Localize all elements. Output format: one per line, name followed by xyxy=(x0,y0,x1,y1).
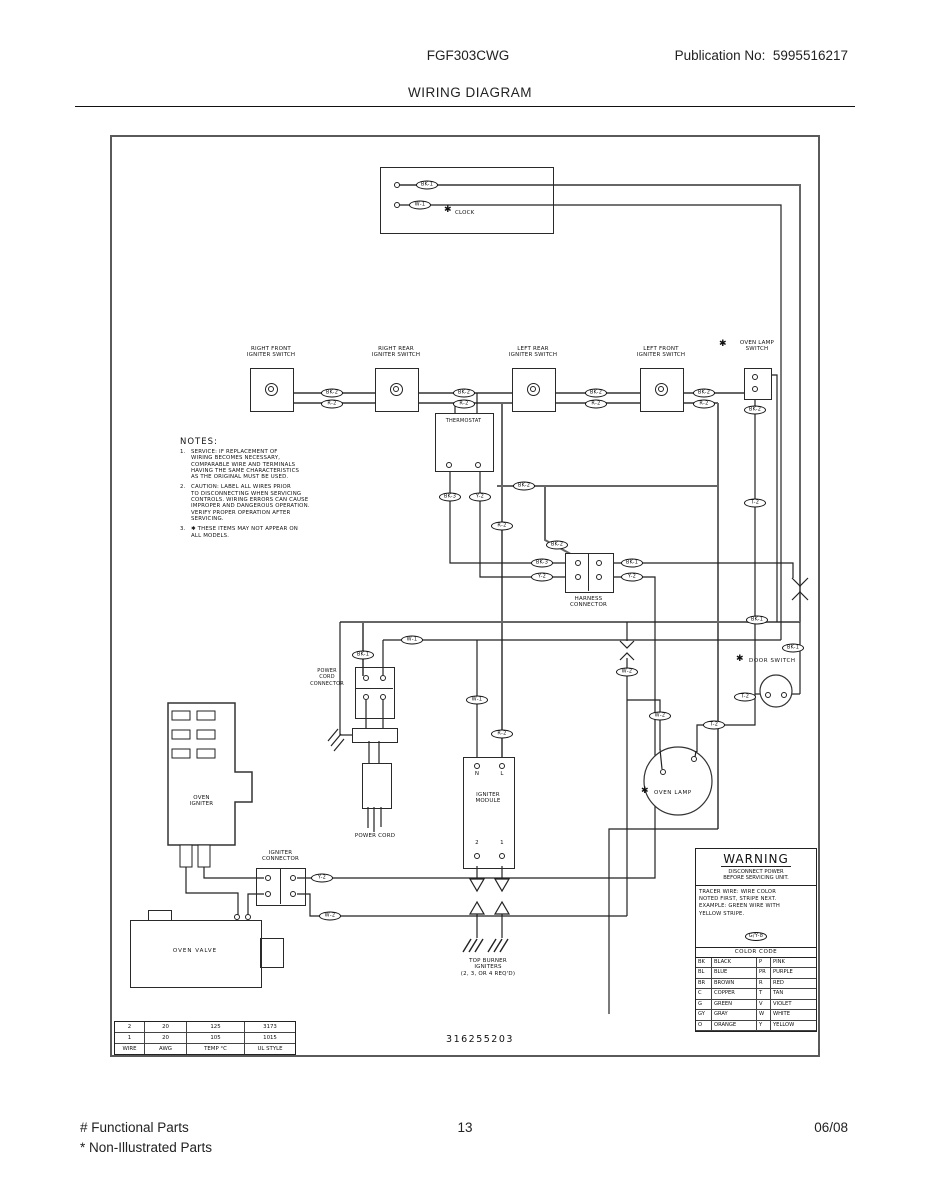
note-item-text: CAUTION: LABEL ALL WIRES PRIOR TO DISCON… xyxy=(191,484,310,522)
color-code-cell: BL xyxy=(696,968,712,979)
igniter-connector-divider xyxy=(280,868,281,904)
notes-heading: NOTES: xyxy=(180,437,358,447)
note-item: 1.SERVICE: IF REPLACEMENT OF WIRING BECO… xyxy=(180,449,358,480)
igniter-switch-label: RIGHT FRONT IGNITER SWITCH xyxy=(222,346,320,359)
power-cord-strain-relief xyxy=(352,728,398,743)
power-cord-connector-terminal xyxy=(380,675,386,681)
harness-connector-label: HARNESS CONNECTOR xyxy=(541,596,636,609)
wire-label: W-2 xyxy=(649,712,671,721)
wire-label: BK-2 xyxy=(321,389,343,398)
wire-label: T-2 xyxy=(734,693,756,702)
harness-terminal xyxy=(596,574,602,580)
may-not-appear-asterisk-icon: ✱ xyxy=(444,206,452,215)
clock-terminal xyxy=(394,182,400,188)
color-code-cell: BK xyxy=(696,958,712,969)
wire-spec-cell: 2 xyxy=(115,1022,145,1033)
door-switch-label: DOOR SWITCH xyxy=(749,658,813,664)
may-not-appear-asterisk-icon: ✱ xyxy=(736,655,744,664)
color-code-table: COLOR CODE BKBLACKPPINKBLBLUEPRPURPLEBRB… xyxy=(696,948,816,1032)
color-code-cell: T xyxy=(757,989,771,1000)
wire-label: W-1 xyxy=(466,696,488,705)
wire-label: BK-2 xyxy=(585,389,607,398)
oven-igniter-shape xyxy=(168,703,252,867)
igniter-module-terminal-2 xyxy=(474,853,480,859)
diagram-part-number: 316255203 xyxy=(410,1034,550,1045)
wire-label: W-1 xyxy=(401,636,423,645)
color-code-cell: W xyxy=(757,1010,771,1021)
color-code-cell: P xyxy=(757,958,771,969)
igniter-connector-terminal xyxy=(290,875,296,881)
color-code-cell: GREEN xyxy=(712,1000,757,1011)
clock-terminal xyxy=(394,202,400,208)
wire-label: BK-2 xyxy=(453,389,475,398)
color-code-cell: WHITE xyxy=(771,1010,816,1021)
note-item-text: ✱ THESE ITEMS MAY NOT APPEAR ON ALL MODE… xyxy=(191,526,298,539)
wire-label: BK-3 xyxy=(439,493,461,502)
manual-page: FGF303CWG Publication No: 5995516217 WIR… xyxy=(0,0,927,1200)
igniter-switch-terminal-dot xyxy=(268,386,274,392)
color-code-cell: RED xyxy=(771,979,816,990)
wire-label: R-2 xyxy=(491,522,513,531)
wire-spec-cell: WIRE xyxy=(115,1044,145,1054)
color-code-cell: G xyxy=(696,1000,712,1011)
color-code-cell: TAN xyxy=(771,989,816,1000)
igniter-switch-terminal-dot xyxy=(530,386,536,392)
igniter-module-terminal-n-label: N xyxy=(472,771,482,777)
may-not-appear-asterisk-icon: ✱ xyxy=(719,340,727,349)
wire-spec-cell: 105 xyxy=(187,1033,245,1044)
note-item: 2.CAUTION: LABEL ALL WIRES PRIOR TO DISC… xyxy=(180,484,358,522)
color-code-cell: ORANGE xyxy=(712,1021,757,1032)
wire-label: BK-3 xyxy=(531,559,553,568)
color-code-cell: BLACK xyxy=(712,958,757,969)
wire-label: T-2 xyxy=(744,499,766,508)
oven-lamp-switch-terminal xyxy=(752,386,758,392)
tracer-example-wire-label: G/Y-8 xyxy=(745,932,768,941)
color-code-cell: PR xyxy=(757,968,771,979)
color-code-cell: C xyxy=(696,989,712,1000)
clock-label: CLOCK xyxy=(455,210,495,216)
tracer-text: TRACER WIRE: WIRE COLOR NOTED FIRST, STR… xyxy=(699,889,813,918)
wire-spec-cell: 3173 xyxy=(245,1022,295,1033)
warning-subtitle: DISCONNECT POWER BEFORE SERVICING UNIT. xyxy=(699,869,813,881)
color-code-cell: VIOLET xyxy=(771,1000,816,1011)
wire-label: W-1 xyxy=(409,201,431,210)
igniter-module-label: IGNITER MODULE xyxy=(464,792,512,805)
wire-label: T-2 xyxy=(703,721,725,730)
igniter-module-terminal-1 xyxy=(499,853,505,859)
wire-label: Y-2 xyxy=(469,493,491,502)
wire-label: BK-2 xyxy=(513,482,535,491)
tracer-section: TRACER WIRE: WIRE COLOR NOTED FIRST, STR… xyxy=(696,886,816,948)
igniter-connector-label: IGNITER CONNECTOR xyxy=(243,850,318,863)
note-item-number: 1. xyxy=(180,449,191,480)
oven-valve-terminal xyxy=(234,914,240,920)
wire-label: R-2 xyxy=(585,400,607,409)
wire-label: R-2 xyxy=(693,400,715,409)
oven-lamp-switch-terminal xyxy=(752,374,758,380)
color-code-cell: COPPER xyxy=(712,989,757,1000)
igniter-module-terminal-l xyxy=(499,763,505,769)
burner-igniter-tips-icon xyxy=(463,939,508,952)
color-code-cell: Y xyxy=(757,1021,771,1032)
wire-spec-cell: AWG xyxy=(145,1044,187,1054)
wire-label: Y-2 xyxy=(621,573,643,582)
wire-label: W-2 xyxy=(616,668,638,677)
thermostat-terminal xyxy=(446,462,452,468)
harness-connector-divider xyxy=(588,553,589,591)
igniter-connector-terminal xyxy=(265,891,271,897)
wire-spec-cell: 1 xyxy=(115,1033,145,1044)
ground-icon xyxy=(328,729,344,751)
color-code-cell: GY xyxy=(696,1010,712,1021)
color-code-cell: R xyxy=(757,979,771,990)
color-code-cell: PINK xyxy=(771,958,816,969)
power-cord-connector-label: POWER CORD CONNECTOR xyxy=(303,668,351,687)
igniter-switch-label: LEFT REAR IGNITER SWITCH xyxy=(484,346,582,359)
wire-label: BK-2 xyxy=(693,389,715,398)
wire-label: BK-1 xyxy=(621,559,643,568)
color-code-cell: PURPLE xyxy=(771,968,816,979)
wire-label: BK-1 xyxy=(416,181,438,190)
wire-label: BK-1 xyxy=(352,651,374,660)
wire-label: BK-1 xyxy=(782,644,804,653)
color-code-cell: V xyxy=(757,1000,771,1011)
color-code-title: COLOR CODE xyxy=(696,948,816,958)
color-code-cell: GRAY xyxy=(712,1010,757,1021)
note-item-number: 2. xyxy=(180,484,191,522)
wire-spec-cell: 125 xyxy=(187,1022,245,1033)
wire-label: W-2 xyxy=(319,912,341,921)
wire-spec-cell: 1015 xyxy=(245,1033,295,1044)
warning-box: WARNING DISCONNECT POWER BEFORE SERVICIN… xyxy=(695,848,817,1032)
note-item-text: SERVICE: IF REPLACEMENT OF WIRING BECOME… xyxy=(191,449,299,480)
oven-lamp-switch-box xyxy=(744,368,772,400)
igniter-module-terminal-l-label: L xyxy=(497,771,507,777)
igniter-connector-terminal xyxy=(265,875,271,881)
wire-label: BK-1 xyxy=(746,616,768,625)
power-cord-connector-terminal xyxy=(363,694,369,700)
oven-igniter-label: OVEN IGNITER xyxy=(168,795,235,808)
wire-spec-cell: 20 xyxy=(145,1022,187,1033)
igniter-connector-box xyxy=(256,868,306,906)
warning-title: WARNING xyxy=(699,852,813,867)
igniter-module-terminal-2-label: 2 xyxy=(472,840,482,846)
top-burner-igniters-label: TOP BURNER IGNITERS (2, 3, OR 4 REQ'D) xyxy=(438,958,538,977)
harness-terminal xyxy=(596,560,602,566)
color-code-cell: O xyxy=(696,1021,712,1032)
igniter-connector-terminal xyxy=(290,891,296,897)
power-cord-label: POWER CORD xyxy=(342,833,408,839)
wire-label: R-2 xyxy=(453,400,475,409)
notes-block: NOTES: 1.SERVICE: IF REPLACEMENT OF WIRI… xyxy=(180,437,358,543)
wire-spec-cell: UL STYLE xyxy=(245,1044,295,1054)
igniter-switch-label: LEFT FRONT IGNITER SWITCH xyxy=(612,346,710,359)
igniter-switch-label: RIGHT REAR IGNITER SWITCH xyxy=(347,346,445,359)
oven-lamp-label: OVEN LAMP xyxy=(654,790,712,796)
inline-connector-icon xyxy=(620,578,808,660)
wire-label: BK-2 xyxy=(546,541,568,550)
wire-label: R-2 xyxy=(491,730,513,739)
color-code-cell: BROWN xyxy=(712,979,757,990)
power-cord-plug-body xyxy=(362,763,392,809)
thermostat-terminal xyxy=(475,462,481,468)
clock-box xyxy=(380,167,554,234)
harness-terminal xyxy=(575,574,581,580)
harness-connector-box xyxy=(565,553,614,593)
power-cord-connector-divider xyxy=(355,688,393,689)
color-code-cell: BLUE xyxy=(712,968,757,979)
wire-spec-cell: 20 xyxy=(145,1033,187,1044)
wire-label: Y-2 xyxy=(531,573,553,582)
note-item: 3.✱ THESE ITEMS MAY NOT APPEAR ON ALL MO… xyxy=(180,526,358,539)
oven-valve-outlet xyxy=(260,938,284,968)
wire-spec-cell: TEMP °C xyxy=(187,1044,245,1054)
wire-label: Y-2 xyxy=(311,874,333,883)
note-item-number: 3. xyxy=(180,526,191,539)
igniter-switch-terminal-dot xyxy=(658,386,664,392)
color-code-cell: YELLOW xyxy=(771,1021,816,1032)
warning-section: WARNING DISCONNECT POWER BEFORE SERVICIN… xyxy=(696,849,816,886)
may-not-appear-asterisk-icon: ✱ xyxy=(641,787,649,796)
thermostat-label: THERMOSTAT xyxy=(436,418,491,424)
igniter-module-terminal-n xyxy=(474,763,480,769)
igniter-module-terminal-1-label: 1 xyxy=(497,840,507,846)
power-cord-connector-terminal xyxy=(380,694,386,700)
color-code-cell: BR xyxy=(696,979,712,990)
oven-valve-terminal xyxy=(245,914,251,920)
power-cord-connector-box xyxy=(355,667,395,719)
door-switch-shape xyxy=(760,675,792,707)
wire-label: R-2 xyxy=(321,400,343,409)
spark-gap-arrows-icon xyxy=(470,879,509,914)
wire-spec-table: 22012531731201051015WIREAWGTEMP °CUL STY… xyxy=(114,1021,296,1055)
oven-lamp-shape xyxy=(644,747,712,815)
power-cord-connector-terminal xyxy=(363,675,369,681)
igniter-module-box xyxy=(463,757,515,869)
harness-terminal xyxy=(575,560,581,566)
wire-label: BK-2 xyxy=(744,406,766,415)
oven-valve-label: OVEN VALVE xyxy=(140,948,250,954)
oven-lamp-switch-label: OVEN LAMP SWITCH xyxy=(731,340,783,353)
igniter-switch-terminal-dot xyxy=(393,386,399,392)
